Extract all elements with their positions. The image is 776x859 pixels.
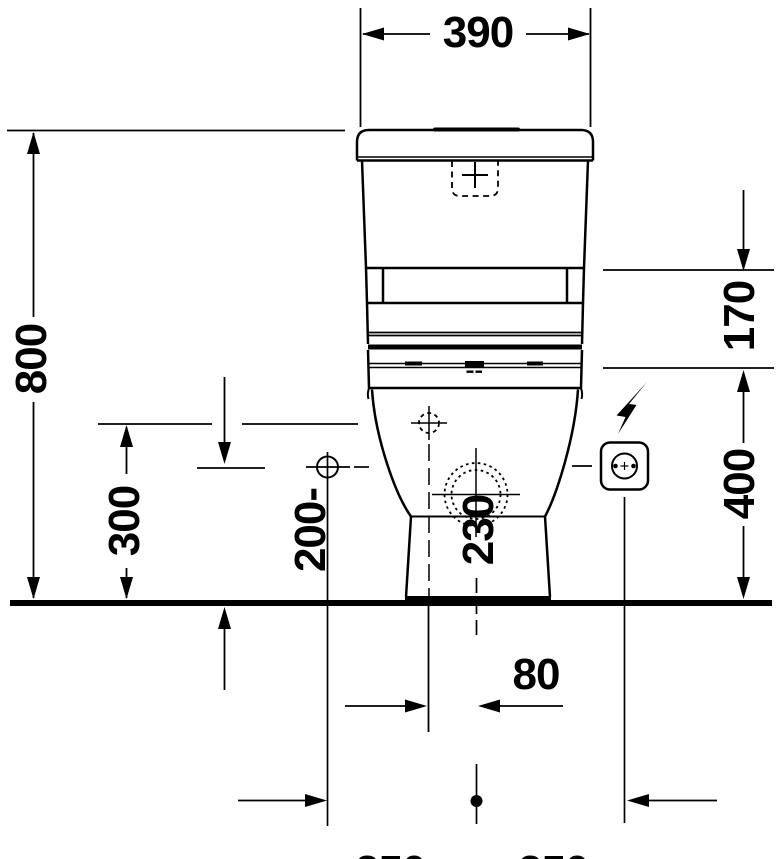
- cistern-lid: [357, 128, 593, 161]
- lid-top-recess: [433, 128, 520, 132]
- technical-drawing-toilet-front-view: 390 800 170 400 300 200- 230 80 250- 300…: [0, 0, 776, 859]
- dim-label-250-300-left: 250- 300: [355, 749, 495, 859]
- dim-label-170: 170: [718, 236, 764, 396]
- dim-label-300: 300: [103, 441, 149, 601]
- dim-label-height-800: 800: [10, 279, 56, 439]
- dim-label-200-230: 200- 230: [171, 470, 283, 590]
- lightning-icon: [617, 382, 648, 434]
- dim-label-400: 400: [718, 404, 764, 564]
- seat-bumper-right: [527, 362, 543, 366]
- dim-250-300-left: [238, 794, 327, 807]
- seat-bumper-left: [405, 362, 422, 366]
- dim-label-80: 80: [436, 653, 636, 697]
- seat-and-hinge-bands: [366, 268, 584, 399]
- drawing-linework: [0, 0, 776, 859]
- seat-shadow-band: [368, 345, 582, 350]
- flush-button-dashed: [452, 161, 498, 196]
- seat-bumper-center: [465, 361, 484, 368]
- dim-label-width-390: 390: [378, 11, 578, 55]
- dim-label-250-300-right: 250- 300: [518, 749, 658, 859]
